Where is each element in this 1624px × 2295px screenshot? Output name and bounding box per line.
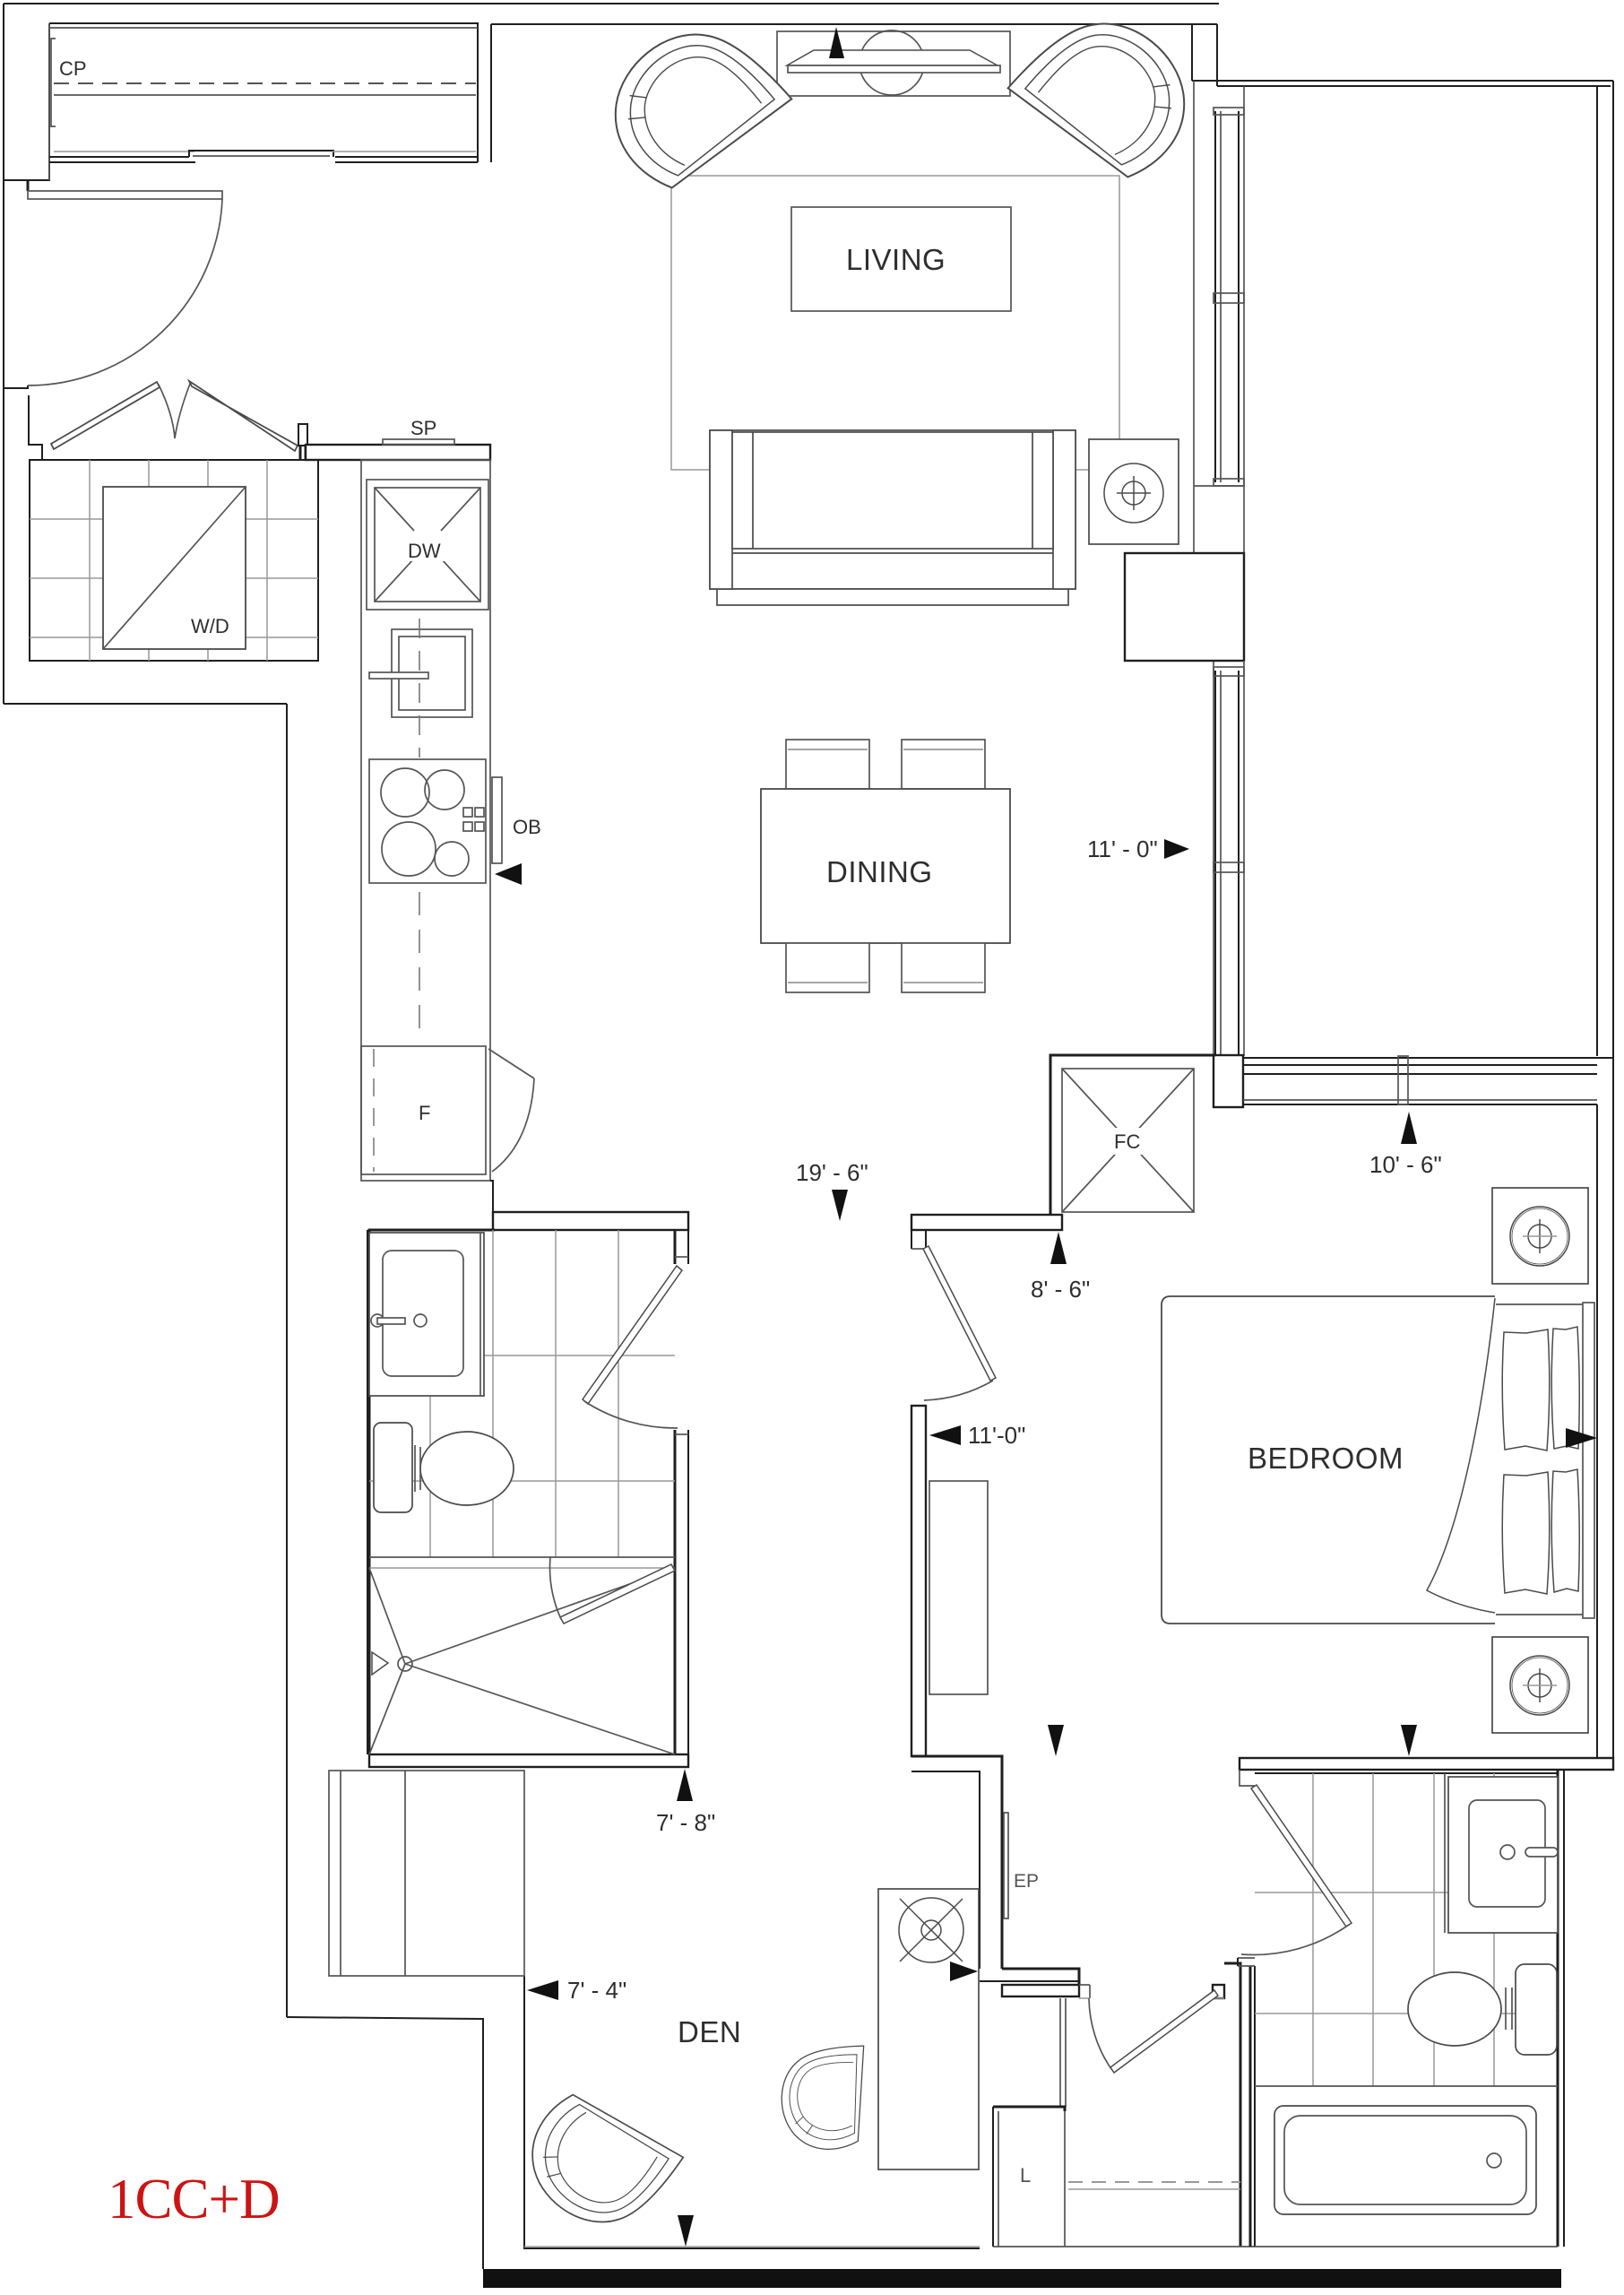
svg-text:7' - 8": 7' - 8" [656, 1809, 715, 1836]
svg-text:FC: FC [1114, 1130, 1140, 1153]
svg-text:11' - 0": 11' - 0" [1087, 836, 1158, 862]
svg-text:BEDROOM: BEDROOM [1248, 1442, 1404, 1475]
svg-text:W/D: W/D [191, 615, 229, 637]
svg-text:CP: CP [59, 57, 87, 80]
svg-text:1CC+D: 1CC+D [108, 2168, 280, 2230]
svg-text:10' - 6": 10' - 6" [1369, 1151, 1442, 1178]
svg-text:DINING: DINING [826, 855, 933, 888]
svg-text:19' - 6": 19' - 6" [796, 1159, 868, 1186]
svg-text:7' - 4": 7' - 4" [567, 1977, 626, 2004]
svg-text:8' - 6": 8' - 6" [1031, 1276, 1090, 1303]
svg-text:EP: EP [1014, 1871, 1039, 1892]
svg-text:LIVING: LIVING [846, 243, 946, 276]
svg-text:F: F [419, 1102, 430, 1124]
svg-text:11'-0": 11'-0" [968, 1422, 1025, 1449]
svg-text:DW: DW [408, 540, 441, 562]
svg-text:SP: SP [410, 417, 436, 439]
svg-text:DEN: DEN [678, 2015, 741, 2048]
svg-text:OB: OB [513, 816, 541, 838]
svg-text:L: L [1020, 2164, 1031, 2187]
